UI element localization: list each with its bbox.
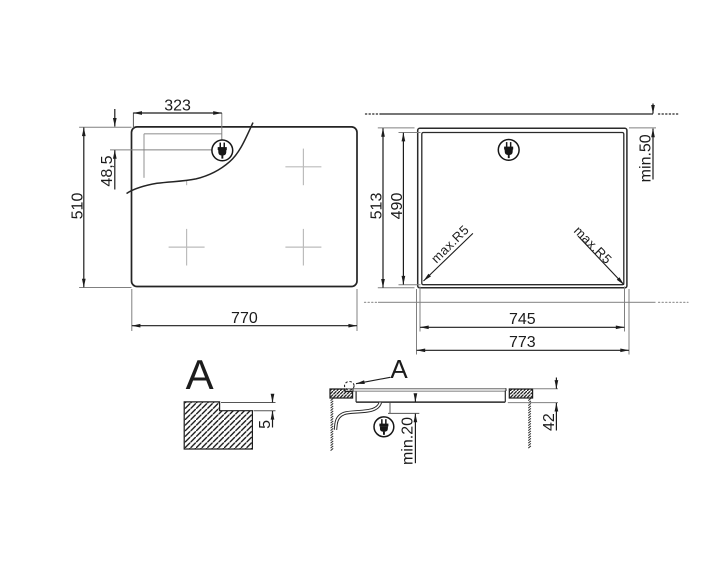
svg-text:745: 745: [509, 311, 536, 328]
svg-text:48,5: 48,5: [99, 155, 116, 186]
svg-text:A: A: [390, 354, 408, 384]
svg-text:490: 490: [389, 193, 406, 220]
svg-text:323: 323: [164, 98, 191, 115]
svg-text:770: 770: [231, 310, 258, 327]
svg-text:513: 513: [368, 193, 385, 220]
svg-text:5: 5: [257, 420, 274, 429]
svg-text:min.20: min.20: [400, 417, 417, 465]
svg-text:A: A: [186, 351, 214, 398]
svg-text:510: 510: [69, 193, 86, 220]
svg-text:773: 773: [509, 334, 536, 351]
svg-text:min.50: min.50: [637, 134, 654, 182]
svg-text:42: 42: [541, 413, 558, 431]
